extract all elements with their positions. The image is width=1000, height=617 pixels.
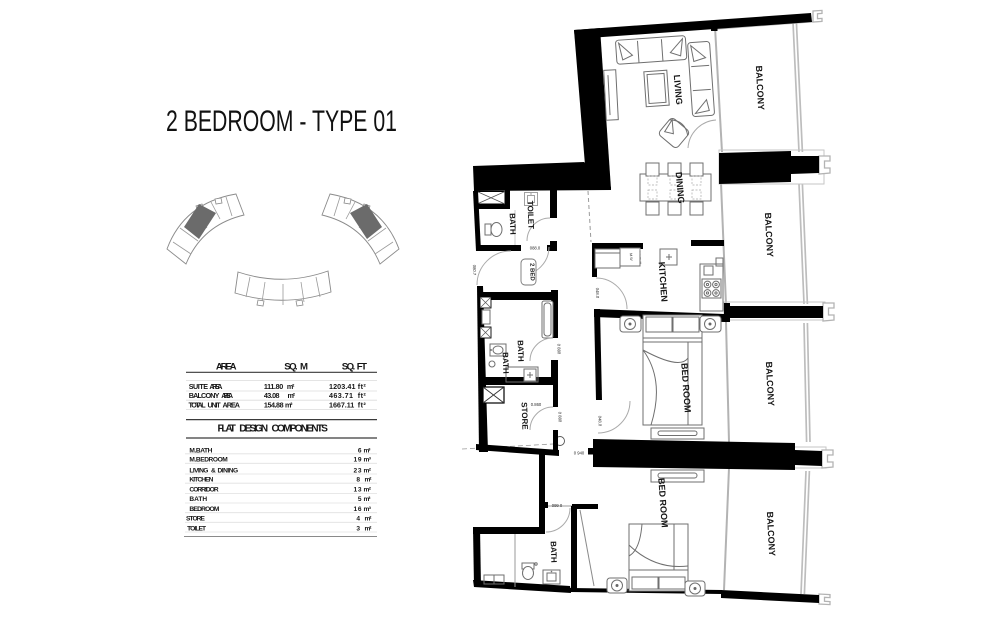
svg-text:16: 16 — [354, 506, 362, 513]
svg-text:STORE: STORE — [520, 402, 530, 430]
svg-text:0 880: 0 880 — [556, 344, 561, 355]
svg-text:ft²: ft² — [358, 400, 367, 409]
svg-text:m²: m² — [288, 391, 296, 400]
svg-text:DESIGN: DESIGN — [239, 424, 268, 435]
svg-text:088.0: 088.0 — [530, 246, 541, 251]
svg-text:BEDROOM: BEDROOM — [189, 506, 220, 513]
svg-text:0.860: 0.860 — [531, 402, 542, 407]
svg-text:STORE: STORE — [186, 516, 205, 523]
svg-text:13: 13 — [354, 487, 362, 494]
svg-text:M: M — [300, 362, 308, 373]
svg-text:SQ.: SQ. — [284, 362, 298, 373]
svg-text:TOILET: TOILET — [526, 201, 536, 230]
svg-text:2 BED: 2 BED — [528, 263, 535, 282]
svg-text:m²: m² — [365, 525, 373, 532]
svg-text:M.W: M.W — [629, 253, 633, 261]
svg-text:111.80: 111.80 — [264, 382, 283, 391]
svg-text:5: 5 — [358, 496, 362, 503]
svg-text:FLAT: FLAT — [218, 424, 237, 435]
svg-text:AREA: AREA — [209, 382, 222, 391]
svg-text:1667.11: 1667.11 — [329, 400, 354, 409]
svg-text:&: & — [211, 467, 216, 474]
svg-text:8: 8 — [356, 477, 360, 484]
svg-text:UNIT: UNIT — [208, 400, 222, 409]
svg-text:BATH: BATH — [501, 352, 511, 374]
svg-text:1203.41: 1203.41 — [329, 382, 356, 391]
svg-text:m²: m² — [365, 477, 373, 484]
svg-text:463.71: 463.71 — [329, 391, 353, 400]
svg-text:m²: m² — [285, 400, 293, 409]
svg-text:CORRIDOR: CORRIDOR — [189, 487, 218, 494]
svg-text:048.0: 048.0 — [595, 288, 600, 299]
svg-text:M.BATH: M.BATH — [189, 447, 212, 454]
svg-text:0 940: 0 940 — [574, 451, 585, 456]
svg-text:099 0: 099 0 — [552, 503, 563, 508]
svg-text:TOTAL: TOTAL — [189, 400, 207, 409]
svg-text:m³: m³ — [364, 447, 372, 454]
svg-text:3: 3 — [356, 525, 360, 532]
svg-text:2 BEDROOM - TYPE 01: 2 BEDROOM - TYPE 01 — [166, 105, 397, 138]
svg-text:m³: m³ — [364, 506, 372, 513]
svg-text:SQ.: SQ. — [342, 362, 356, 373]
svg-text:M.BEDROOM: M.BEDROOM — [189, 457, 228, 464]
svg-text:4: 4 — [356, 516, 360, 523]
svg-text:BATH: BATH — [508, 213, 518, 235]
svg-text:KITCHEN: KITCHEN — [189, 477, 213, 484]
svg-text:LIVING: LIVING — [189, 467, 208, 474]
svg-text:080.7: 080.7 — [472, 265, 477, 276]
svg-text:19: 19 — [354, 457, 362, 464]
svg-text:BALCONY: BALCONY — [189, 391, 220, 400]
svg-text:BATH: BATH — [189, 496, 207, 503]
svg-text:m²: m² — [365, 516, 373, 523]
svg-text:ft²: ft² — [358, 391, 367, 400]
svg-text:ft²: ft² — [358, 382, 367, 391]
svg-text:m³: m³ — [364, 457, 372, 464]
svg-text:048.0: 048.0 — [597, 416, 602, 427]
svg-text:AREA: AREA — [221, 391, 233, 400]
svg-text:m²: m² — [287, 382, 295, 391]
svg-text:BATH: BATH — [549, 541, 559, 563]
svg-text:m²: m² — [364, 467, 372, 474]
svg-text:TOILET: TOILET — [187, 525, 206, 532]
svg-text:0 880: 0 880 — [557, 412, 562, 423]
svg-text:AREA: AREA — [223, 400, 241, 409]
svg-text:154.88: 154.88 — [264, 400, 284, 409]
svg-text:FT: FT — [357, 362, 367, 373]
svg-text:23: 23 — [354, 467, 362, 474]
svg-text:SUITE: SUITE — [189, 382, 209, 391]
svg-text:DINING: DINING — [218, 467, 239, 474]
svg-text:BATH: BATH — [516, 340, 526, 362]
svg-text:43.08: 43.08 — [264, 391, 280, 400]
svg-text:AREA: AREA — [216, 362, 237, 373]
svg-text:m³: m³ — [364, 496, 372, 503]
svg-text:COMPONENTS: COMPONENTS — [272, 424, 329, 435]
svg-text:6: 6 — [358, 447, 362, 454]
svg-text:m²: m² — [364, 487, 372, 494]
